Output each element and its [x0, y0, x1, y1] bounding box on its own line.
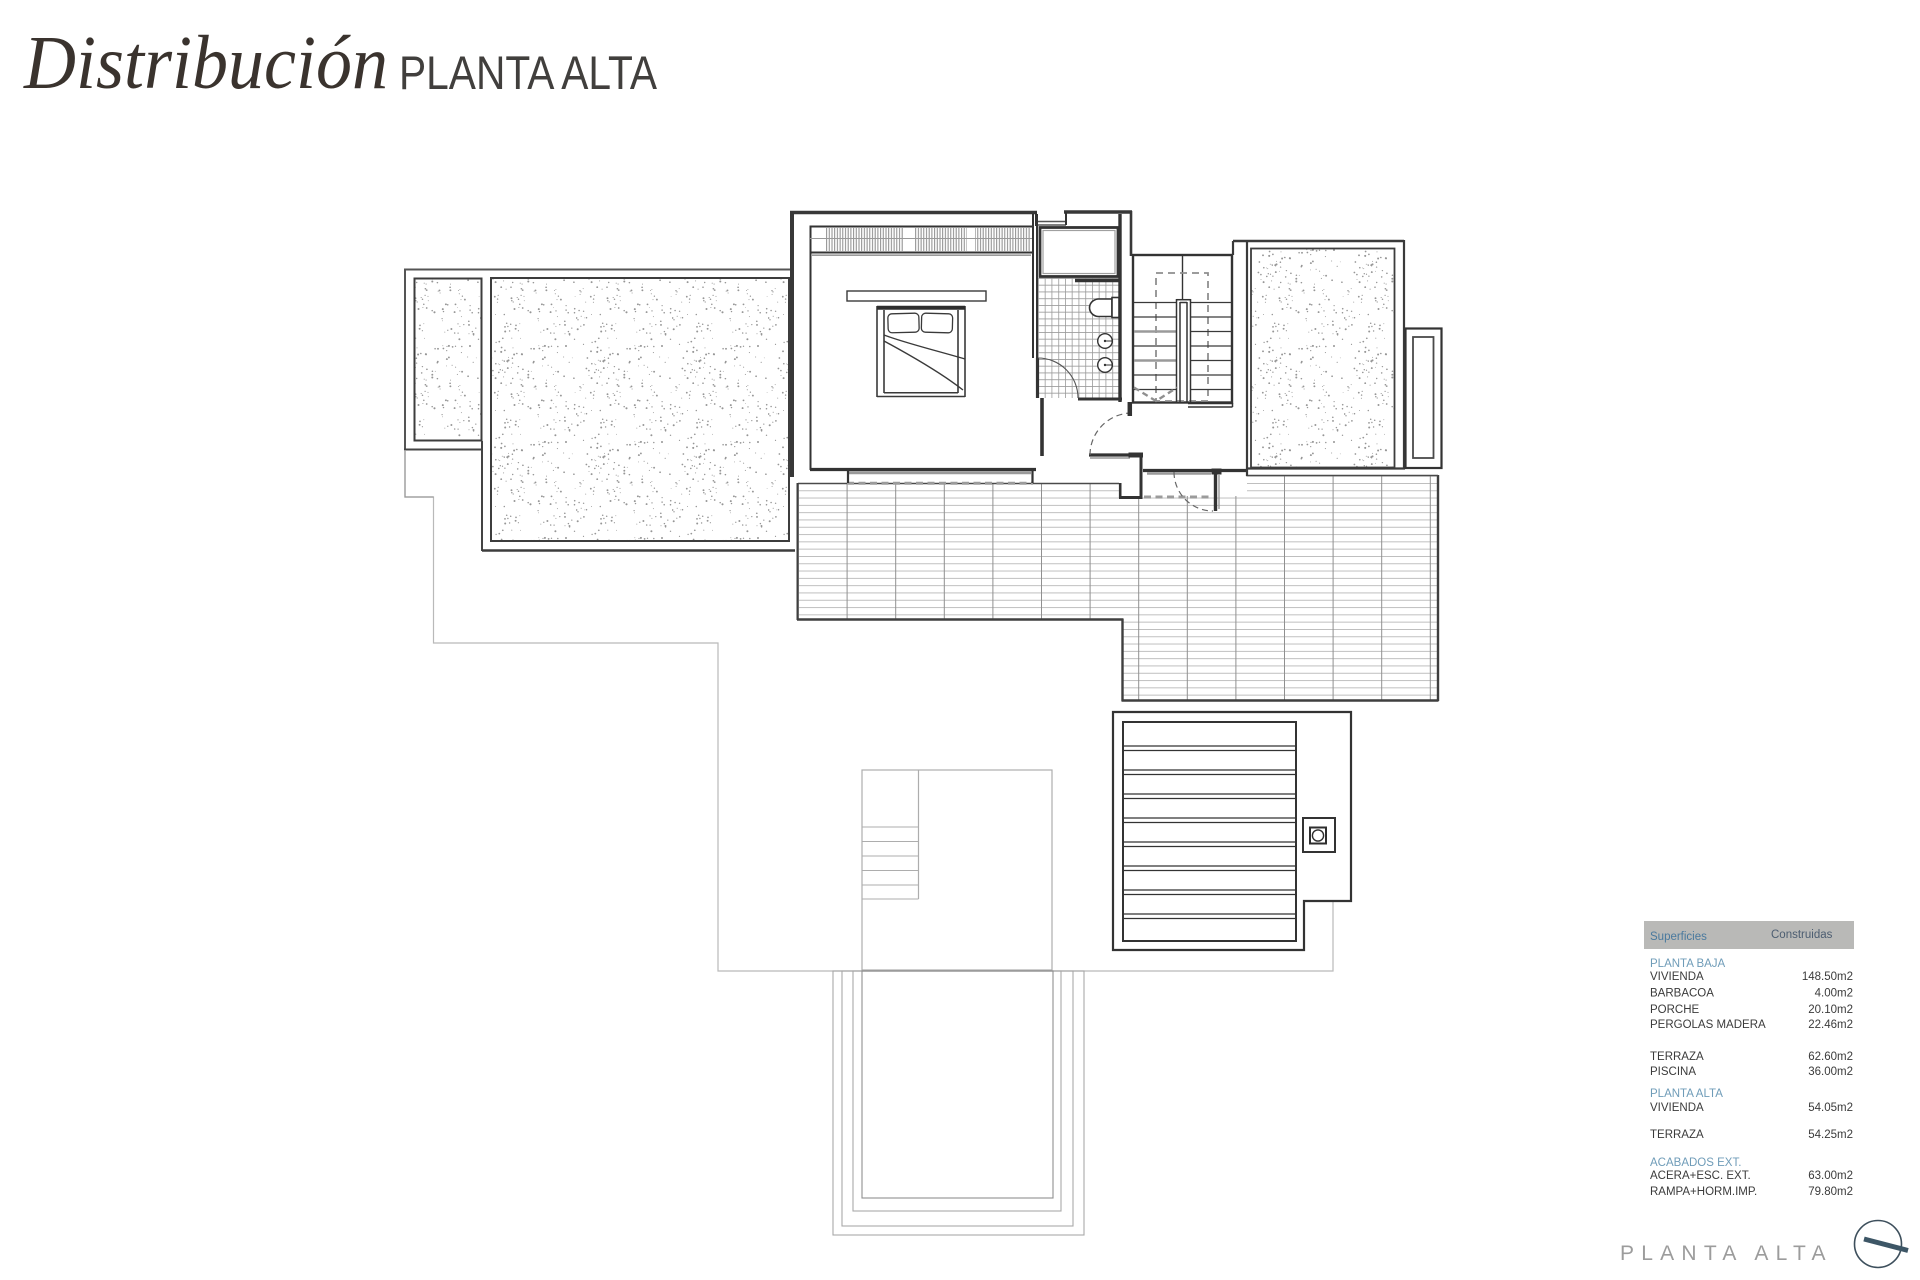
svg-text:PLANTA ALTA: PLANTA ALTA: [399, 46, 658, 99]
svg-text:20.10m2: 20.10m2: [1808, 1004, 1853, 1016]
svg-text:Construidas: Construidas: [1771, 929, 1833, 941]
svg-text:PORCHE: PORCHE: [1650, 1004, 1700, 1016]
svg-text:PLANTA ALTA: PLANTA ALTA: [1650, 1088, 1723, 1100]
svg-text:RAMPA+HORM.IMP.: RAMPA+HORM.IMP.: [1650, 1186, 1757, 1198]
svg-text:4.00m2: 4.00m2: [1815, 988, 1853, 1000]
svg-text:36.00m2: 36.00m2: [1808, 1066, 1853, 1078]
svg-text:TERRAZA: TERRAZA: [1650, 1051, 1704, 1063]
svg-text:22.46m2: 22.46m2: [1808, 1019, 1853, 1031]
svg-text:148.50m2: 148.50m2: [1802, 971, 1853, 983]
svg-text:VIVIENDA: VIVIENDA: [1650, 1102, 1704, 1114]
svg-text:VIVIENDA: VIVIENDA: [1650, 971, 1704, 983]
svg-text:62.60m2: 62.60m2: [1808, 1051, 1853, 1063]
svg-text:Superficies: Superficies: [1650, 931, 1707, 943]
svg-text:54.05m2: 54.05m2: [1808, 1102, 1853, 1114]
svg-text:54.25m2: 54.25m2: [1808, 1129, 1853, 1141]
svg-text:PERGOLAS MADERA: PERGOLAS MADERA: [1650, 1019, 1766, 1031]
svg-text:PISCINA: PISCINA: [1650, 1066, 1696, 1078]
svg-text:ACABADOS EXT.: ACABADOS EXT.: [1650, 1157, 1741, 1169]
svg-text:Distribución: Distribución: [23, 21, 388, 105]
svg-text:BARBACOA: BARBACOA: [1650, 988, 1714, 1000]
svg-text:PLANTA ALTA: PLANTA ALTA: [1620, 1242, 1838, 1265]
svg-text:PLANTA BAJA: PLANTA BAJA: [1650, 958, 1726, 970]
svg-text:79.80m2: 79.80m2: [1808, 1186, 1853, 1198]
svg-text:TERRAZA: TERRAZA: [1650, 1129, 1704, 1141]
svg-text:63.00m2: 63.00m2: [1808, 1170, 1853, 1182]
svg-text:ACERA+ESC. EXT.: ACERA+ESC. EXT.: [1650, 1170, 1751, 1182]
